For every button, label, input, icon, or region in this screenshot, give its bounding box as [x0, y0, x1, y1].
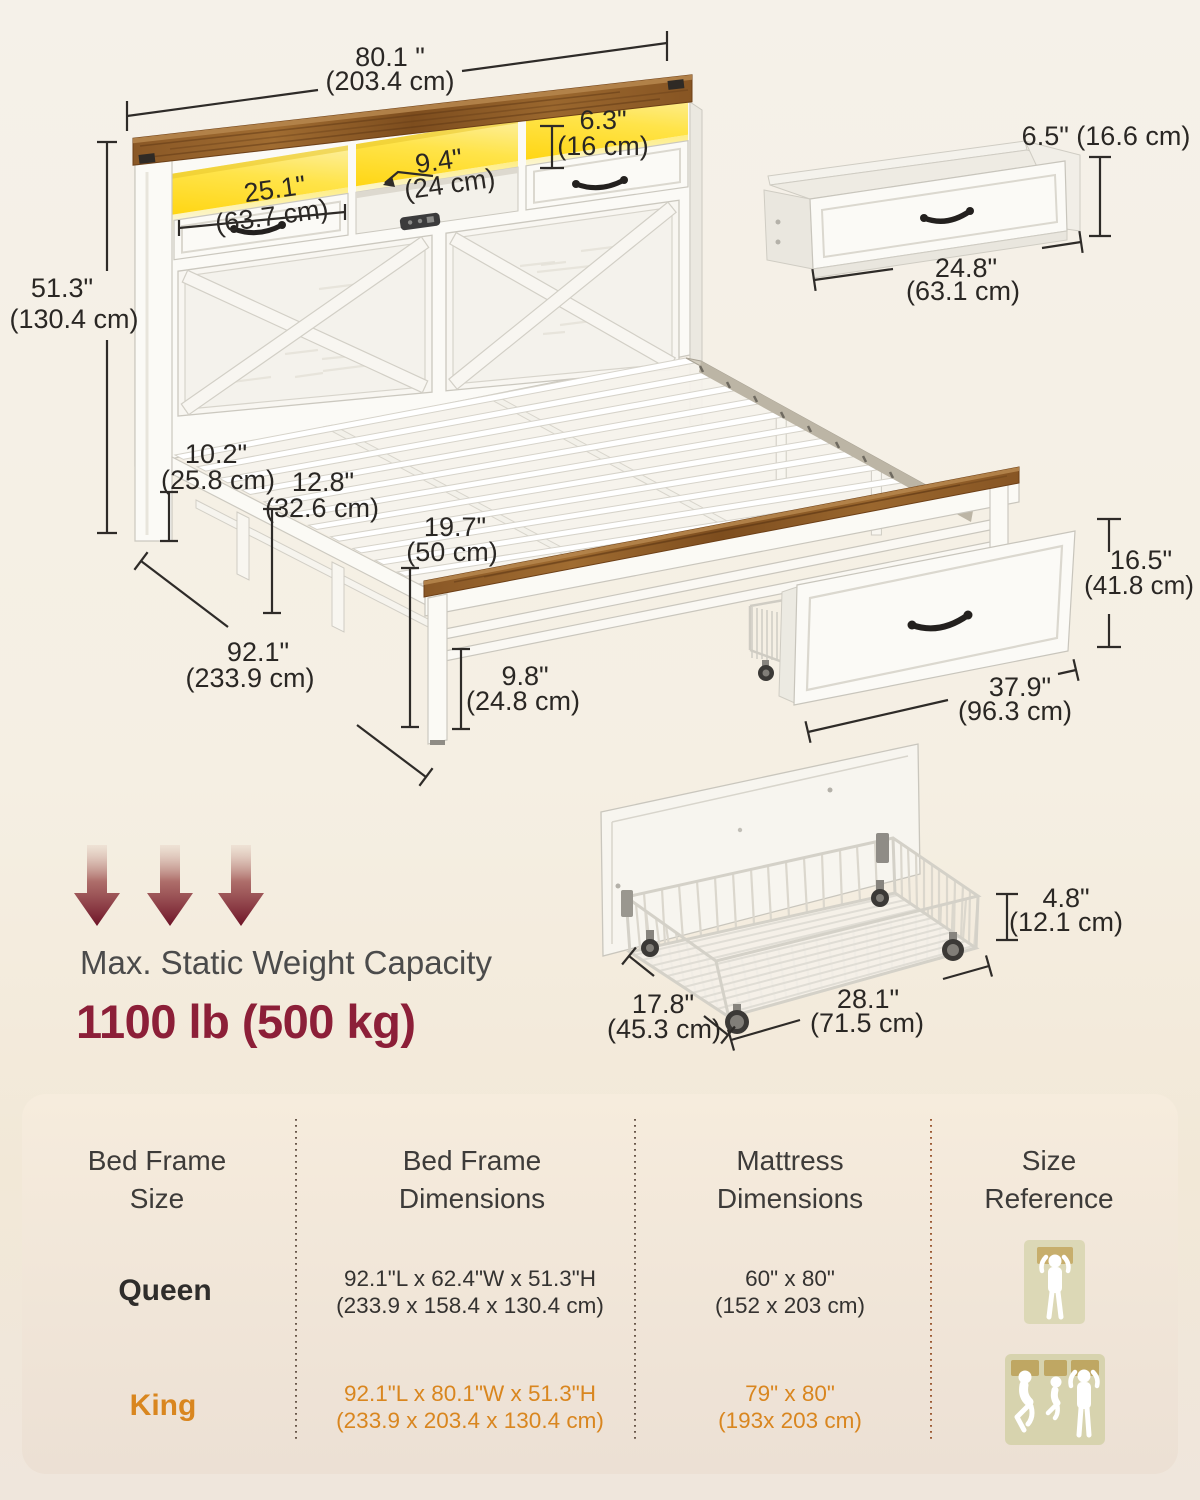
- svg-text:(63.1 cm): (63.1 cm): [906, 276, 1020, 306]
- svg-text:(233.9 x 158.4 x 130.4 cm): (233.9 x 158.4 x 130.4 cm): [336, 1293, 604, 1318]
- svg-text:(24.8 cm): (24.8 cm): [466, 686, 580, 716]
- svg-text:Reference: Reference: [984, 1183, 1113, 1214]
- svg-text:(152 x 203 cm): (152 x 203 cm): [715, 1293, 865, 1318]
- svg-text:(32.6 cm): (32.6 cm): [265, 493, 379, 523]
- svg-text:79" x 80": 79" x 80": [745, 1381, 835, 1406]
- svg-text:6.5" (16.6 cm): 6.5" (16.6 cm): [1022, 121, 1191, 151]
- svg-text:(25.8 cm): (25.8 cm): [161, 465, 275, 495]
- svg-text:Size: Size: [130, 1183, 184, 1214]
- svg-text:Dimensions: Dimensions: [717, 1183, 863, 1214]
- svg-text:51.3": 51.3": [31, 273, 93, 303]
- svg-text:92.1"L x 62.4"W x 51.3"H: 92.1"L x 62.4"W x 51.3"H: [344, 1266, 596, 1291]
- svg-text:Size: Size: [1022, 1145, 1076, 1176]
- svg-text:(41.8 cm): (41.8 cm): [1084, 570, 1194, 600]
- svg-text:1100 lb (500 kg): 1100 lb (500 kg): [76, 995, 415, 1048]
- svg-text:(193x 203 cm): (193x 203 cm): [718, 1408, 862, 1433]
- svg-text:(96.3 cm): (96.3 cm): [958, 696, 1072, 726]
- svg-text:Mattress: Mattress: [736, 1145, 843, 1176]
- svg-text:Bed Frame: Bed Frame: [88, 1145, 227, 1176]
- svg-text:(203.4 cm): (203.4 cm): [325, 66, 454, 96]
- svg-text:(45.3 cm): (45.3 cm): [607, 1014, 721, 1044]
- svg-text:Queen: Queen: [118, 1274, 211, 1307]
- svg-text:(233.9 x 203.4 x 130.4 cm): (233.9 x 203.4 x 130.4 cm): [336, 1408, 604, 1433]
- svg-text:Max. Static Weight Capacity: Max. Static Weight Capacity: [80, 944, 493, 981]
- svg-text:Bed Frame: Bed Frame: [403, 1145, 542, 1176]
- svg-text:(16 cm): (16 cm): [557, 131, 649, 161]
- svg-text:(233.9 cm): (233.9 cm): [185, 663, 314, 693]
- svg-text:Dimensions: Dimensions: [399, 1183, 545, 1214]
- svg-text:(50 cm): (50 cm): [406, 537, 498, 567]
- svg-text:92.1"L x 80.1"W x 51.3"H: 92.1"L x 80.1"W x 51.3"H: [344, 1381, 596, 1406]
- svg-text:(71.5 cm): (71.5 cm): [810, 1008, 924, 1038]
- svg-text:60" x 80": 60" x 80": [745, 1266, 835, 1291]
- svg-text:(130.4 cm): (130.4 cm): [9, 304, 138, 334]
- svg-text:(12.1 cm): (12.1 cm): [1009, 907, 1123, 937]
- svg-text:King: King: [130, 1389, 197, 1422]
